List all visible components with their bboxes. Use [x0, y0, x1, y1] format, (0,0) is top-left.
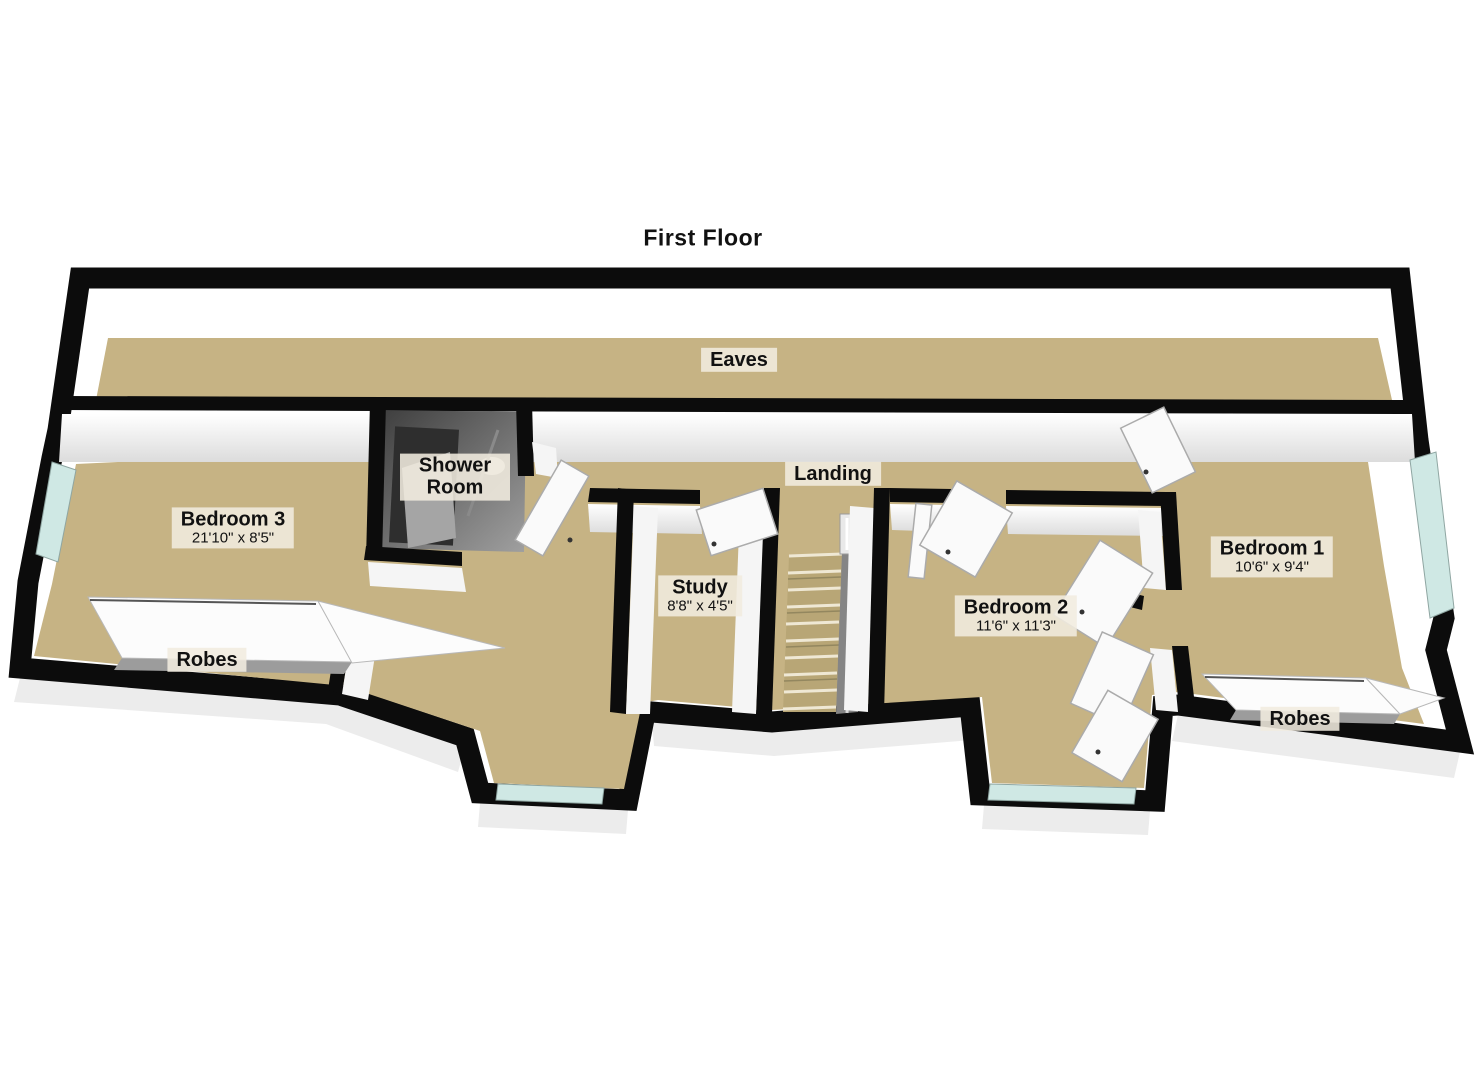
room-label-robes-right: Robes: [1260, 707, 1339, 731]
central-divider-wall: [59, 396, 1415, 462]
room-label-shower-room: Shower Room: [400, 454, 510, 501]
room-dimensions: 8'8" x 4'5": [667, 599, 733, 616]
room-label-study: Study 8'8" x 4'5": [658, 575, 742, 616]
room-name: Robes: [1269, 708, 1330, 730]
room-dimensions: 10'6" x 9'4": [1220, 560, 1324, 577]
room-dimensions: 21'10" x 8'5": [181, 531, 285, 548]
room-label-eaves: Eaves: [701, 348, 777, 372]
room-name: Bedroom 2: [964, 596, 1068, 618]
room-label-landing: Landing: [785, 462, 881, 486]
room-name: Shower Room: [409, 455, 501, 500]
window-bottom-right-bay: [988, 784, 1136, 804]
room-label-robes-left: Robes: [167, 648, 246, 672]
room-name: Landing: [794, 463, 872, 485]
plan-title: First Floor: [643, 225, 762, 252]
room-label-bedroom3: Bedroom 3 21'10" x 8'5": [172, 507, 294, 548]
room-name: Bedroom 3: [181, 508, 285, 530]
room-dimensions: 11'6" x 11'3": [964, 619, 1068, 636]
room-name: Eaves: [710, 349, 768, 371]
room-label-bedroom2: Bedroom 2 11'6" x 11'3": [955, 595, 1077, 636]
room-name: Bedroom 1: [1220, 537, 1324, 559]
floor-plan: First Floor Eaves Bedroom 3 21'10" x 8'5…: [0, 0, 1484, 1080]
room-name: Study: [667, 576, 733, 598]
room-label-bedroom1: Bedroom 1 10'6" x 9'4": [1211, 536, 1333, 577]
window-bottom-left-bay: [496, 784, 604, 804]
room-name: Robes: [176, 649, 237, 671]
